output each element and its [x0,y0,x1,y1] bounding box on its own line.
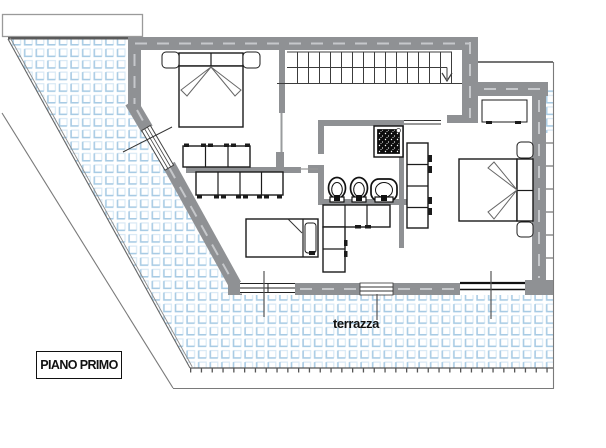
floor-title-box: PIANO PRIMO [36,351,122,379]
single-bed [246,219,318,257]
window-bottom-center [360,283,393,295]
corner-cabinet [323,205,390,272]
stairs [277,52,462,84]
floor-title: PIANO PRIMO [40,358,117,372]
double-bed-right [459,142,533,237]
wardrobe-column [407,143,432,228]
balcony-ticks [546,143,553,258]
floorplan-canvas: terrazza PIANO PRIMO [0,0,606,448]
terrace-label: terrazza [333,316,379,331]
bidet [351,178,368,203]
double-bed-left [162,52,260,127]
desk [482,100,527,124]
shower-head [397,129,401,133]
washbasin [371,179,397,202]
roof-outline [3,15,143,37]
window-bottom-left [240,282,295,294]
window-bottom-right [460,281,525,294]
toilet [329,178,346,203]
floorplan-drawing [0,0,606,448]
shower [374,126,403,157]
bathroom [329,126,404,202]
